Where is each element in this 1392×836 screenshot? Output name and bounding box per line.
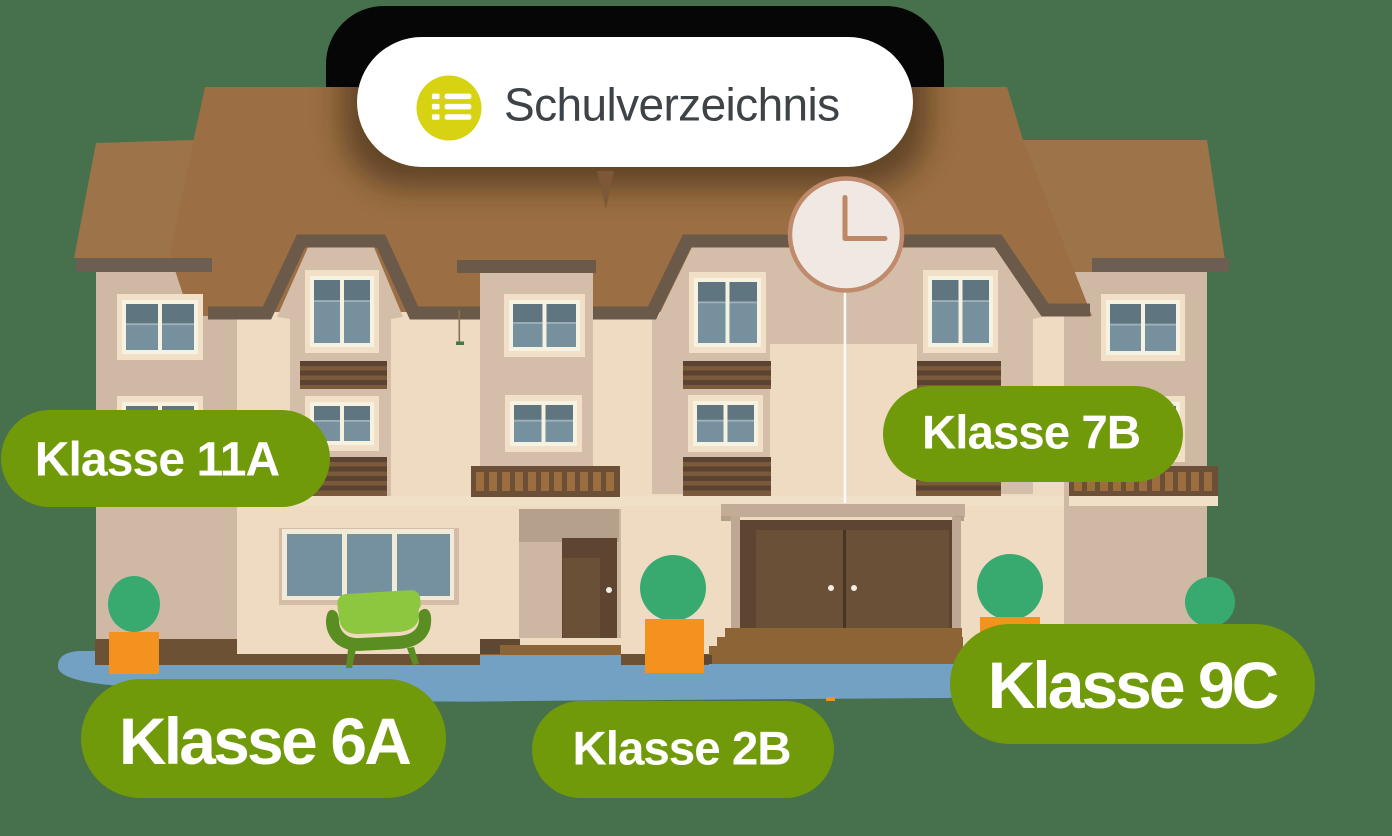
svg-text:Klasse 6A: Klasse 6A xyxy=(119,704,410,778)
svg-text:Schulverzeichnis: Schulverzeichnis xyxy=(504,79,840,131)
svg-text:Klasse 7B: Klasse 7B xyxy=(922,407,1140,460)
svg-text:Klasse 11A: Klasse 11A xyxy=(35,434,280,487)
svg-text:Klasse 9C: Klasse 9C xyxy=(988,648,1278,722)
svg-text:Klasse 2B: Klasse 2B xyxy=(572,723,790,776)
